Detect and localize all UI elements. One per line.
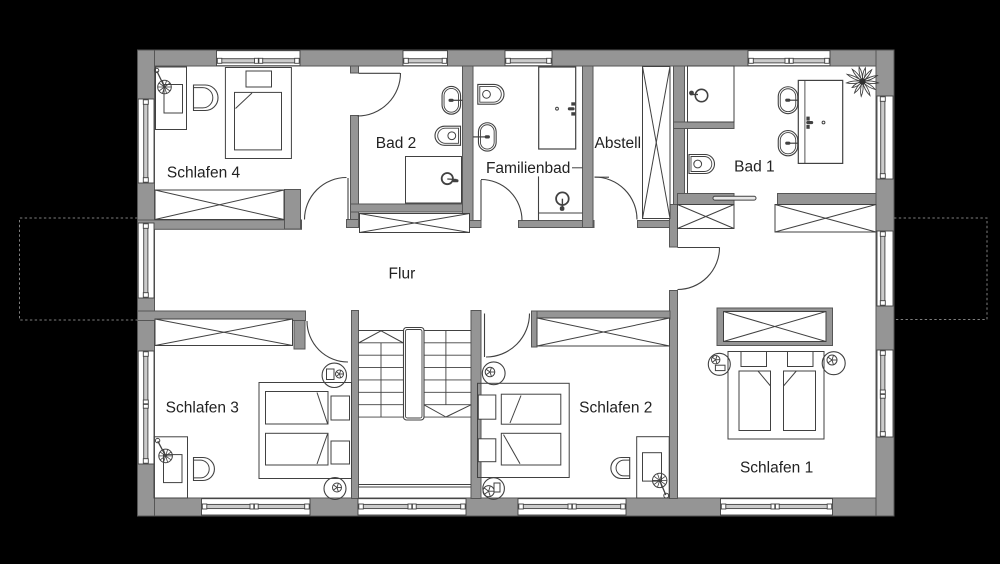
- svg-text:Familienbad: Familienbad: [486, 160, 570, 177]
- svg-text:Abstell: Abstell: [595, 135, 642, 152]
- svg-text:Schlafen 2: Schlafen 2: [579, 400, 652, 417]
- svg-text:Bad 1: Bad 1: [734, 158, 775, 175]
- svg-text:Flur: Flur: [389, 265, 416, 282]
- svg-text:Schlafen 3: Schlafen 3: [166, 400, 239, 417]
- svg-text:Schlafen 1: Schlafen 1: [740, 460, 813, 477]
- svg-text:Bad 2: Bad 2: [376, 135, 417, 152]
- svg-text:Schlafen 4: Schlafen 4: [167, 165, 241, 182]
